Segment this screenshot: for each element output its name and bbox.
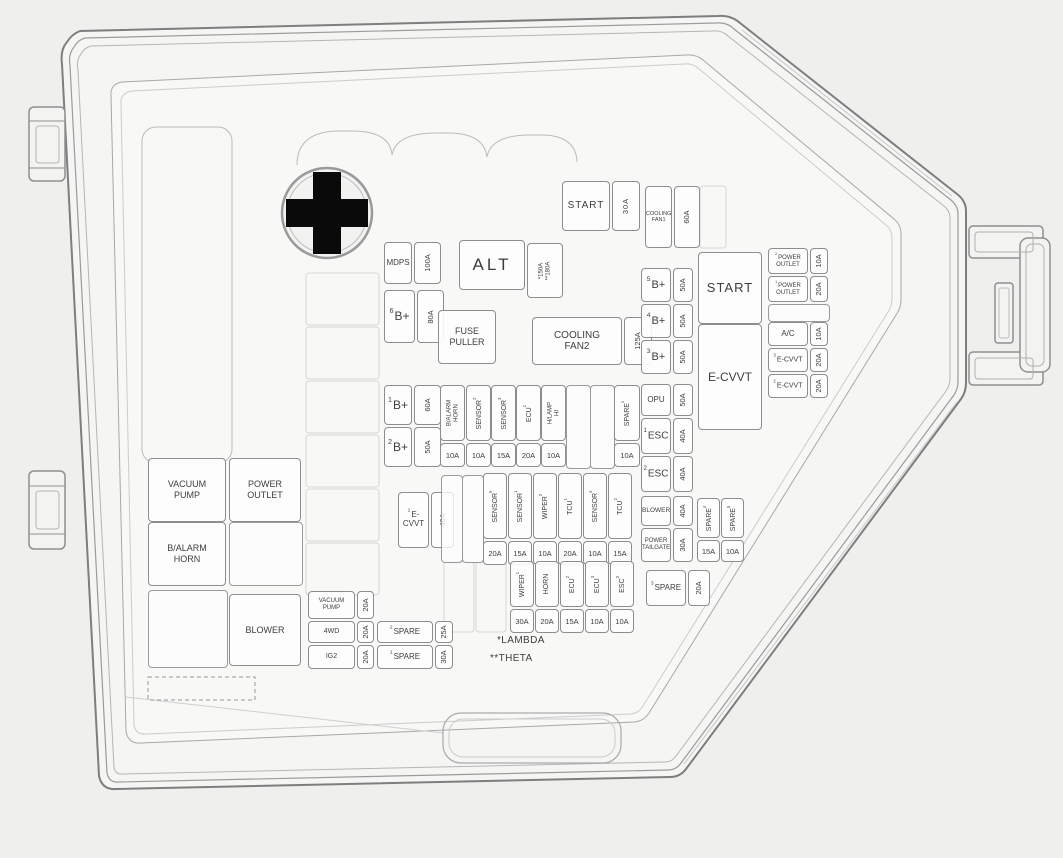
b-alarm-horn-relay-box-part: B/ALARM <box>167 543 207 554</box>
fuse-cooling-fan2-part: COOLING <box>554 330 600 341</box>
fuse-wiper-1-part: WIPER1 <box>517 571 526 597</box>
fuse-h-lamp-hi-label2: HI <box>554 410 560 416</box>
fuse-b-plus-4-value: 50A <box>679 314 687 327</box>
power-outlet-relay-box-part: POWER <box>248 479 282 490</box>
fuse-wiper-1-value: 30A <box>515 617 528 626</box>
fuse-spare-3-part: 20A <box>688 570 710 606</box>
fuse-b-alarm-horn-part: HORN <box>453 400 460 426</box>
fuse-b-plus-4-sup: 4 <box>647 313 651 320</box>
fuse-b-plus-3-part: 50A <box>673 340 693 374</box>
fuse-b-plus-1-part: 60A <box>423 398 431 411</box>
note-lambda: *LAMBDA <box>497 633 567 647</box>
fuse-opu-part: 50A <box>673 384 693 416</box>
fuse-power-outlet-1-part: OUTLET <box>776 290 800 297</box>
note-theta: **THETA <box>490 651 560 665</box>
fuse-cooling-fan1-part: FAN1 <box>652 217 666 223</box>
fuse-esc-3-sup: 3 <box>616 576 620 578</box>
fuse-ecu-3: ECU310A <box>585 561 609 633</box>
fuse-wiper-2-value: 10A <box>538 549 551 558</box>
fuse-4wd-part: 4WD <box>324 628 340 636</box>
fuse-sensor-5-sup: 5 <box>489 491 493 493</box>
fuse-alt-value: *150A <box>538 261 545 280</box>
fuse-ig2-part: IG2 <box>326 653 337 661</box>
fuse-b-plus-2-label: B+ <box>393 440 408 454</box>
alt-label-box-label: ALT <box>473 255 512 274</box>
fuse-b-alarm-horn: B/ALARMHORN10A <box>440 385 465 467</box>
fuse-esc-1-part: 1ESC <box>641 418 671 454</box>
e-cvvt-relay-box-label: E-CVVT <box>708 370 752 384</box>
fuse-e-cvvt-2-value: 20A <box>815 379 823 392</box>
fuse-sensor-5-value: 20A <box>488 549 501 558</box>
fuse-b-plus-1: 1B+60A <box>384 385 441 425</box>
fuse-panel: START30ACOOLINGFAN160AMDPS100A6B+80AALT*… <box>0 0 1063 858</box>
blower-relay-box-label: BLOWER <box>245 625 284 635</box>
fuse-b-plus-4-part: 50A <box>679 314 687 327</box>
fuse-b-alarm-horn-part: B/ALARMHORN <box>446 400 459 426</box>
fuse-b-plus-6-value: 80A <box>426 310 434 323</box>
fuse-cooling-fan1-value: 60A <box>683 210 691 223</box>
fuse-ecu-2-part: ECU2 <box>560 561 584 607</box>
fuse-spare-1-value: 30A <box>440 650 448 663</box>
fuse-e-cvvt-1-part: CVVT <box>403 520 424 529</box>
fuse-tcu-1-value: 20A <box>563 549 576 558</box>
fuse-alt: *150A**180A <box>527 243 561 298</box>
fuse-esc-2-value: 40A <box>679 467 687 480</box>
fuse-esc-3-part: ESC3 <box>617 575 626 593</box>
fuse-wiper-1-sup: 1 <box>516 572 520 574</box>
fuse-sensor-4-label: SENSOR <box>592 493 599 523</box>
fuse-start-top-label: START <box>568 200 605 211</box>
fuse-power-tailgate-part: 30A <box>673 528 693 562</box>
fuse-tcu-2: TCU215A <box>608 473 632 565</box>
fuse-tcu-2-sup: 2 <box>614 498 618 500</box>
fuse-b-plus-2-value: 50A <box>423 440 431 453</box>
fuse-spare-5-part: 10A <box>721 540 744 562</box>
fuse-opu-value: 50A <box>679 393 687 406</box>
fuse-spare-4-part: 15A <box>697 540 720 562</box>
fuse-b-plus-6-part: 6B+ <box>384 290 415 343</box>
fuse-b-plus-6-sup: 6 <box>389 307 393 314</box>
fuse-b-plus-3-label: B+ <box>651 351 665 363</box>
fuse-power-outlet-2-part: 10A <box>810 248 828 274</box>
fuse-blower-label: BLOWER <box>642 507 670 514</box>
fuse-spare-4-part: SPARE4 <box>704 505 713 532</box>
fuse-sensor-1: SENSOR115A <box>508 473 532 565</box>
fuse-b-plus-5: 5B+50A <box>641 268 693 302</box>
empty-slot <box>441 475 463 563</box>
fuse-sensor-5-part: 20A <box>483 541 507 565</box>
blower-relay-box-part: BLOWER <box>229 594 301 666</box>
fuse-spare-upper-part: SPARE1 <box>622 400 631 427</box>
fuse-spare-1-part: 1SPARE <box>390 653 420 662</box>
fuse-tcu-2-part: TCU2 <box>608 473 632 539</box>
fuse-sensor-3-part: 15A <box>491 443 516 467</box>
fuse-b-alarm-horn-part: 10A <box>440 443 465 467</box>
fuse-spare-1-part: 30A <box>435 645 453 669</box>
fuse-horn: HORN20A <box>535 561 559 633</box>
fuse-puller-box-part: FUSE <box>455 326 479 337</box>
fuse-start-top-part: 30A <box>622 198 630 214</box>
fuse-spare-2-part: 2SPARE <box>377 621 433 643</box>
fuse-cooling-fan1-part: 60A <box>674 186 700 248</box>
fuse-tcu-2-label: TCU <box>617 500 624 514</box>
fuse-spare-2-part: 25A <box>435 621 453 643</box>
fuse-spare-5-part: SPARE5 <box>728 505 737 532</box>
fuse-mdps-label: MDPS <box>386 258 409 267</box>
fuse-sensor-4-part: SENSOR4 <box>590 490 599 523</box>
fuse-b-plus-1-part: 1B+ <box>384 385 412 425</box>
fuse-esc-2: 2ESC40A <box>641 456 693 492</box>
fuse-h-lamp-hi-label: H/LAMP <box>547 402 553 424</box>
fuse-power-outlet-2-part: OUTLET <box>776 262 800 269</box>
power-outlet-relay-box-label2: OUTLET <box>247 490 283 500</box>
fuse-sensor-1-part: SENSOR1 <box>515 490 524 523</box>
fuse-sensor-3-part: SENSOR3 <box>499 397 508 430</box>
fuse-b-alarm-horn-label: B/ALARM <box>446 400 452 426</box>
vacuum-pump-relay-box-label2: PUMP <box>174 490 200 500</box>
fuse-spare-2-label: SPARE <box>394 627 421 636</box>
fuse-power-tailgate-part: TAILGATE <box>642 545 670 552</box>
fuse-ecu-3-label: ECU <box>594 578 601 593</box>
fuse-blower-part: BLOWER <box>642 507 670 514</box>
fuse-b-plus-3-sup: 3 <box>647 349 651 356</box>
fuse-mdps-part: MDPS <box>384 242 412 284</box>
fuse-esc-1-part: 40A <box>673 418 693 454</box>
blower-relay-box-part: BLOWER <box>245 625 284 636</box>
fuse-b-plus-4-part: 4B+ <box>647 315 665 327</box>
fuse-b-plus-3-part: 3B+ <box>647 351 665 363</box>
fuse-b-plus-6-label: B+ <box>394 309 409 323</box>
vacuum-pump-relay-box-label: VACUUM <box>168 479 206 489</box>
fuse-b-plus-1-part: 1B+ <box>388 398 408 412</box>
empty-slot <box>148 590 228 668</box>
fuse-ecu-1-label: ECU <box>525 407 532 422</box>
fuse-ecu-3-part: 10A <box>585 609 609 633</box>
fuse-puller-box-part: PULLER <box>449 337 484 348</box>
fuse-spare-4-part: SPARE4 <box>697 498 720 538</box>
fuse-horn-part: HORN <box>543 574 551 595</box>
fuse-b-alarm-horn-part: B/ALARM <box>446 400 453 426</box>
fuse-h-lamp-hi-part: 10A <box>541 443 566 467</box>
fuse-blower-part: BLOWER <box>641 496 671 526</box>
fuse-alt-value2: **180A <box>545 261 552 280</box>
fuse-4wd-part: 4WD <box>308 621 355 643</box>
fuse-alt-part: *150A**180A <box>527 243 563 298</box>
fuse-esc-2-part: 2ESC <box>641 456 671 492</box>
fuse-sensor-4-sup: 4 <box>589 491 593 493</box>
fuse-spare-2-value: 25A <box>440 625 448 638</box>
fuse-spare-upper-part: SPARE1 <box>614 385 640 441</box>
fuse-cooling-fan2-part: FAN2 <box>564 341 589 352</box>
fuse-power-outlet-2-sup: 2 <box>775 253 777 257</box>
power-outlet-relay-box-label: POWER <box>248 479 282 489</box>
fuse-e-cvvt-2-part: 2E-CVVT <box>773 381 802 390</box>
fuse-spare-1: 1SPARE30A <box>377 645 453 669</box>
fuse-cooling-fan2-label2: FAN2 <box>564 341 589 352</box>
power-outlet-relay-box: POWEROUTLET <box>229 458 301 520</box>
fuse-ac-label: A/C <box>781 329 794 338</box>
fuse-h-lamp-hi-part: H/LAMPHI <box>541 385 566 441</box>
fuse-spare-3-part: 3SPARE <box>646 570 686 606</box>
fuse-ecu-2-part: 15A <box>560 609 584 633</box>
fuse-spare-1-part: 1SPARE <box>377 645 433 669</box>
fuse-blower-part: 40A <box>673 496 693 526</box>
fuse-spare-5-sup: 5 <box>727 506 731 508</box>
fuse-b-plus-5-part: 50A <box>673 268 693 302</box>
fuse-sensor-2-value: 10A <box>472 451 485 460</box>
fuse-start-top-value: 30A <box>622 198 630 214</box>
fuse-spare-2-part: 25A <box>440 625 448 638</box>
fuse-sensor-2-part: SENSOR2 <box>474 397 483 430</box>
fuse-vacuum-pump-part: PUMP <box>323 605 340 612</box>
fuse-sensor-5-part: SENSOR5 <box>490 490 499 523</box>
fuse-cooling-fan1: COOLINGFAN160A <box>645 186 698 248</box>
fuse-sensor-1-label: SENSOR <box>517 493 524 523</box>
fuse-b-alarm-horn-value: 10A <box>446 451 459 460</box>
fuse-esc-2-part: 2ESC <box>644 468 669 480</box>
fuse-b-plus-3: 3B+50A <box>641 340 693 374</box>
fuse-e-cvvt-2-part: 2E-CVVT <box>768 374 808 398</box>
fuse-spare-upper: SPARE110A <box>614 385 640 467</box>
fuse-horn-value: 20A <box>540 617 553 626</box>
fuse-b-plus-2-part: 50A <box>414 427 441 467</box>
fuse-wiper-2-part: WIPER2 <box>540 493 549 519</box>
fuse-sensor-2: SENSOR210A <box>466 385 491 467</box>
alt-label-box-part: ALT <box>473 255 512 275</box>
fuse-power-tailgate-label: POWER <box>645 538 668 544</box>
fuse-ecu-2-label: ECU <box>569 578 576 593</box>
fuse-vacuum-pump-part: 20A <box>357 591 374 619</box>
fuse-4wd: 4WD20A <box>308 621 374 643</box>
fuse-ecu-2-value: 15A <box>565 617 578 626</box>
fuse-wiper-1: WIPER130A <box>510 561 534 633</box>
fuse-b-plus-4-part: 50A <box>673 304 693 338</box>
fuse-ecu-3-value: 10A <box>590 617 603 626</box>
fuse-sensor-2-sup: 2 <box>473 398 477 400</box>
start-relay-box-part: START <box>707 280 753 296</box>
fuse-e-cvvt-3-part: 3E-CVVT <box>773 355 802 364</box>
fuse-spare-4-value: 15A <box>702 547 715 556</box>
fuse-sensor-1-sup: 1 <box>514 491 518 493</box>
fuse-sensor-5-part: SENSOR5 <box>490 490 499 523</box>
fuse-spare-2-part: 2SPARE <box>390 628 420 637</box>
fuse-tcu-1: TCU120A <box>558 473 582 565</box>
fuse-b-plus-5-sup: 5 <box>647 277 651 284</box>
fuse-box-cover-diagram: START30ACOOLINGFAN160AMDPS100A6B+80AALT*… <box>0 0 1063 858</box>
fuse-mdps-part: 100A <box>423 254 431 272</box>
fuse-cooling-fan1-label2: FAN1 <box>652 217 666 223</box>
fuse-b-plus-2-part: 2B+ <box>388 440 408 454</box>
fuse-e-cvvt-1-part: 1E-CVVT <box>398 492 429 548</box>
fuse-spare-3-part: 3SPARE <box>651 584 681 593</box>
fuse-power-outlet-1-sup: 1 <box>775 281 777 285</box>
fuse-ac-part: 10A <box>810 322 828 346</box>
fuse-spare-1-sup: 1 <box>390 651 393 656</box>
power-outlet-relay-box-part: POWEROUTLET <box>229 458 301 522</box>
fuse-power-outlet-1-part: 20A <box>815 282 823 295</box>
fuse-ac-value: 10A <box>815 327 823 340</box>
fuse-opu-part: OPU <box>641 384 671 416</box>
fuse-b-plus-4-label: B+ <box>651 315 665 327</box>
alt-label-box-part: ALT <box>459 240 525 290</box>
fuse-power-tailgate-part: 30A <box>679 538 687 551</box>
fuse-spare-upper-part: SPARE1 <box>622 400 631 427</box>
fuse-esc-3-part: 10A <box>610 609 634 633</box>
fuse-ac-part: A/C <box>768 322 808 346</box>
fuse-ecu-1-sup: 1 <box>523 405 527 407</box>
fuse-spare-upper-sup: 1 <box>621 401 625 403</box>
fuse-sensor-1-value: 15A <box>513 549 526 558</box>
fuse-power-outlet-2-part: 2POWER <box>775 254 801 262</box>
fuse-spare-2: 2SPARE25A <box>377 621 453 643</box>
fuse-power-tailgate-part: POWER <box>645 538 668 545</box>
start-relay-box-label: START <box>707 280 753 295</box>
fuse-e-cvvt-3-part: 3E-CVVT <box>768 348 808 372</box>
fuse-ecu-1-part: ECU1 <box>516 385 541 441</box>
fuse-tcu-2-value: 15A <box>613 549 626 558</box>
b-alarm-horn-relay-box-part: B/ALARMHORN <box>148 522 226 586</box>
fuse-ecu-2-sup: 2 <box>566 576 570 578</box>
fuse-start-top-part: START <box>568 200 605 211</box>
fuse-sensor-3-sup: 3 <box>498 398 502 400</box>
fuse-wiper-2: WIPER210A <box>533 473 557 565</box>
fuse-spare-5-part: SPARE5 <box>721 498 744 538</box>
fuse-h-lamp-hi-value: 10A <box>547 451 560 460</box>
fuse-e-cvvt-3-value: 20A <box>815 353 823 366</box>
fuse-vacuum-pump-part: 20A <box>361 598 369 611</box>
fuse-tcu-1-sup: 1 <box>564 498 568 500</box>
vacuum-pump-relay-box: VACUUMPUMP <box>148 458 226 520</box>
fuse-esc-1-label: ESC <box>648 431 669 442</box>
fuse-cooling-fan1-label: COOLING <box>646 211 671 217</box>
fuse-b-plus-5-label: B+ <box>651 279 665 291</box>
fuse-4wd-value: 20A <box>361 625 369 638</box>
fuse-b-plus-2-sup: 2 <box>388 438 392 445</box>
fuse-sensor-2-part: 10A <box>466 443 491 467</box>
fuse-spare-5-label: SPARE <box>729 508 736 531</box>
fuse-opu-part: 50A <box>679 393 687 406</box>
fuse-ecu-3-part: ECU3 <box>585 561 609 607</box>
fuse-ac-part: A/C <box>781 330 794 339</box>
fuse-b-alarm-horn-label2: HORN <box>453 404 459 422</box>
fuse-spare-5-part: SPARE5 <box>728 505 737 532</box>
fuse-e-cvvt-3-part: 20A <box>810 348 828 372</box>
fuse-power-outlet-1-part: 20A <box>810 276 828 302</box>
b-alarm-horn-relay-box-part: HORN <box>174 554 201 565</box>
fuse-mdps-part: 100A <box>414 242 441 284</box>
fuse-tcu-1-part: TCU1 <box>565 497 574 515</box>
fuse-b-plus-2-part: 50A <box>423 440 431 453</box>
note-lambda-label: *LAMBDA <box>497 635 545 646</box>
fuse-h-lamp-hi-part: H/LAMP <box>547 402 554 424</box>
fuse-spare-5: SPARE510A <box>721 498 744 562</box>
fuse-horn-part: HORN <box>543 574 551 595</box>
fuse-start-top-part: START <box>562 181 610 231</box>
fuse-wiper-1-label: WIPER <box>519 574 526 597</box>
fuse-cooling-fan2-part: COOLINGFAN2 <box>532 317 622 365</box>
fuse-vacuum-pump-part: VACUUM <box>319 598 345 605</box>
fuse-power-outlet-1-part: 1POWER <box>775 282 801 290</box>
empty-slot <box>566 385 591 469</box>
fuse-tcu-2-part: TCU2 <box>615 497 624 515</box>
fuse-tcu-1-label: TCU <box>567 500 574 514</box>
empty-slot <box>768 304 830 322</box>
b-alarm-horn-relay-box: B/ALARMHORN <box>148 522 226 584</box>
fuse-b-plus-4-part: 4B+ <box>641 304 671 338</box>
fuse-wiper-2-part: WIPER2 <box>533 473 557 539</box>
fuse-sensor-3-part: SENSOR3 <box>491 385 516 441</box>
fuse-b-plus-5-part: 50A <box>679 278 687 291</box>
fuse-b-plus-5-part: 5B+ <box>647 279 665 291</box>
fuse-spare-1-part: 30A <box>440 650 448 663</box>
fuse-e-cvvt-1-label: E- <box>411 510 419 519</box>
fuse-b-plus-5-value: 50A <box>679 278 687 291</box>
fuse-4wd-part: 20A <box>361 625 369 638</box>
fuse-b-plus-1-sup: 1 <box>388 396 392 403</box>
fuse-power-outlet-1-part: 1POWEROUTLET <box>768 276 808 302</box>
fuse-e-cvvt-3-sup: 3 <box>773 354 775 358</box>
fuse-spare-1-label: SPARE <box>394 652 421 661</box>
fuse-opu-part: OPU <box>647 396 664 405</box>
fuse-ecu-2-part: ECU2 <box>567 575 576 593</box>
fuse-4wd-label: 4WD <box>324 628 340 635</box>
fuse-power-outlet-2-part: 10A <box>815 254 823 267</box>
fuse-sensor-4-part: SENSOR4 <box>590 490 599 523</box>
fuse-ig2-part: 20A <box>361 650 369 663</box>
fuse-spare-3-label: SPARE <box>655 583 682 592</box>
power-outlet-relay-box-part: OUTLET <box>247 490 283 501</box>
fuse-esc-2-part: 40A <box>673 456 693 492</box>
fuse-power-tailgate-value: 30A <box>679 538 687 551</box>
fuse-b-plus-1-label: B+ <box>393 398 408 412</box>
fuse-esc-2-part: 40A <box>679 467 687 480</box>
fuse-wiper-2-part: WIPER2 <box>540 493 549 519</box>
fuse-e-cvvt-1-label2: CVVT <box>403 519 424 528</box>
fuse-power-outlet-2-label: POWER <box>778 255 801 261</box>
e-cvvt-relay-box-part: E-CVVT <box>708 370 752 384</box>
fuse-b-plus-3-part: 50A <box>679 350 687 363</box>
fuse-spare-4-part: SPARE4 <box>704 505 713 532</box>
fuse-ecu-1-value: 20A <box>522 451 535 460</box>
fuse-b-plus-1-part: 60A <box>414 385 441 425</box>
fuse-ig2: IG220A <box>308 645 374 669</box>
fuse-sensor-3: SENSOR315A <box>491 385 516 467</box>
fuse-puller-box-label2: PULLER <box>449 337 484 347</box>
fuse-b-plus-2: 2B+50A <box>384 427 441 467</box>
blower-relay-box: BLOWER <box>229 594 301 664</box>
fuse-cooling-fan1-part: COOLINGFAN1 <box>645 186 672 248</box>
fuse-b-plus-1-value: 60A <box>423 398 431 411</box>
fuse-b-plus-6-part: 80A <box>426 310 434 323</box>
fuse-e-cvvt-2-sup: 2 <box>773 380 775 384</box>
fuse-ecu-2: ECU215A <box>560 561 584 633</box>
fuse-esc-1-value: 40A <box>679 429 687 442</box>
fuse-tcu-1-part: TCU1 <box>565 497 574 515</box>
fuse-spare-3-value: 20A <box>695 581 703 594</box>
fuse-spare-upper-label: SPARE <box>624 403 631 426</box>
start-relay-box-part: START <box>698 252 762 324</box>
fuse-tcu-2-part: TCU2 <box>615 497 624 515</box>
fuse-mdps-value: 100A <box>423 254 431 272</box>
fuse-sensor-1-part: SENSOR1 <box>515 490 524 523</box>
fuse-e-cvvt-3-label: E-CVVT <box>777 357 803 364</box>
fuse-vacuum-pump-value: 20A <box>361 598 369 611</box>
alt-label-box: ALT <box>459 240 525 288</box>
fuse-sensor-1-part: SENSOR1 <box>508 473 532 539</box>
fuse-wiper-1-part: 30A <box>510 609 534 633</box>
fuse-vacuum-pump-label: VACUUM <box>319 598 345 604</box>
fuse-power-tailgate-part: POWERTAILGATE <box>641 528 671 562</box>
